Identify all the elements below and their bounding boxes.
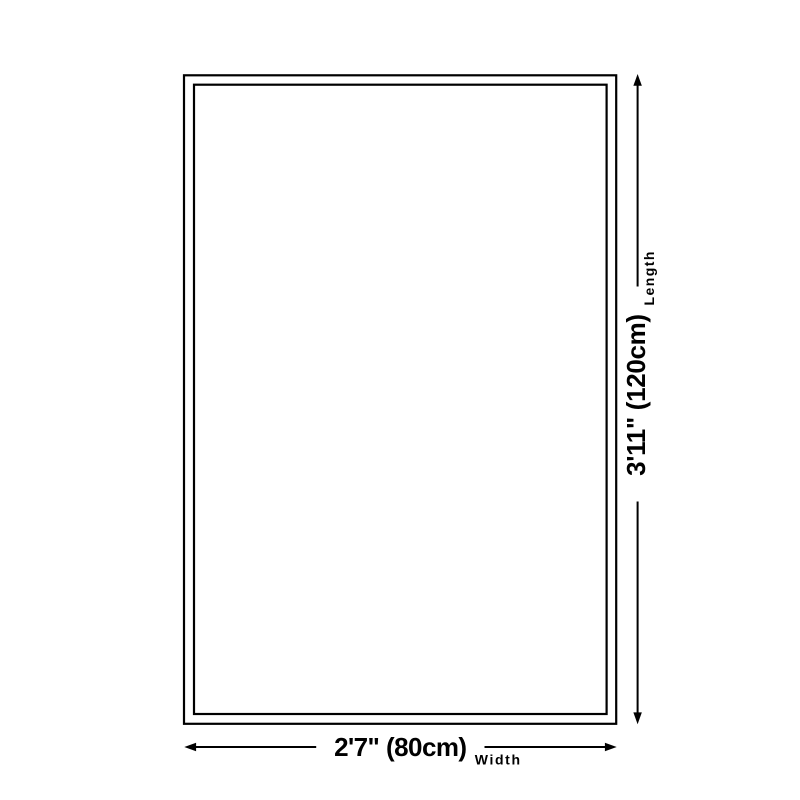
svg-text:3'11" (120cm): 3'11" (120cm) xyxy=(621,314,651,476)
svg-text:Length: Length xyxy=(641,252,657,306)
svg-text:2'7" (80cm): 2'7" (80cm) xyxy=(334,732,467,762)
svg-text:Width: Width xyxy=(475,752,520,768)
